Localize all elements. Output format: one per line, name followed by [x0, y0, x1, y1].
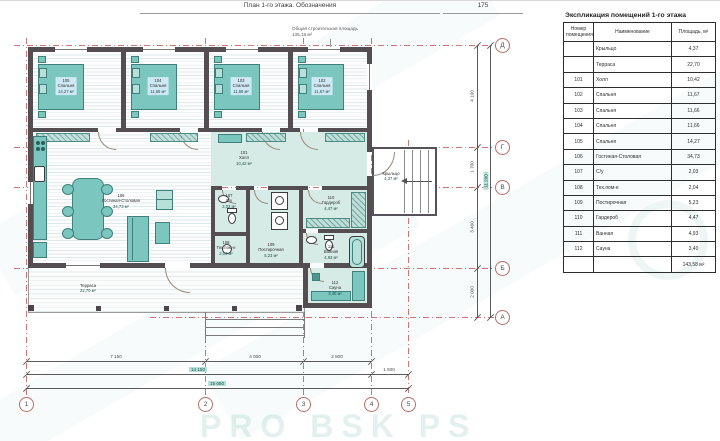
table-row: Крыльцо4,37: [564, 42, 716, 57]
cell-name: Ванная: [594, 226, 672, 241]
cell-area: 11,66: [672, 103, 716, 118]
abs: [214, 56, 222, 63]
terrace-steps: [205, 312, 305, 338]
abs: [367, 176, 372, 268]
abs: [198, 128, 262, 132]
chair: [62, 206, 74, 217]
rl-area: 2,04 м²: [216, 251, 235, 256]
total-area: 143,58 м²: [672, 257, 716, 272]
axis-marker-3: 3: [296, 397, 311, 412]
cell-area: 5,23: [672, 195, 716, 210]
rl-area: 10,42 м²: [236, 161, 252, 166]
rl-name: Спальня: [150, 83, 167, 88]
abs: [367, 268, 372, 308]
abs: [131, 111, 139, 118]
abs: [318, 128, 367, 132]
dim-label: 3 400: [470, 221, 475, 233]
cell-number: 107: [564, 165, 594, 180]
c-num: [564, 257, 594, 272]
cell-number: 104: [564, 118, 594, 133]
build-area-note: Общая строительная площадь 135,18 м²: [292, 26, 372, 38]
rl-name: Ванная: [324, 249, 338, 254]
abs: [121, 52, 126, 132]
abs: [275, 216, 284, 225]
rl-name: Гардероб: [322, 200, 340, 205]
rl-area: 14,27 м²: [58, 89, 75, 94]
abs: [131, 56, 139, 63]
room-label-r108: 108Тех.пом-е2,04 м²: [216, 240, 235, 256]
cell-number: 106: [564, 149, 594, 164]
armchair: [155, 222, 170, 244]
dining-table: [72, 178, 104, 240]
axis-marker-1: 1: [19, 397, 34, 412]
abs: [38, 111, 46, 118]
cell-name: Гардероб: [594, 211, 672, 226]
dim-label: 1 500: [383, 367, 395, 372]
rl-area: 4,37 м²: [382, 176, 399, 181]
abs: [280, 128, 300, 132]
table-row: 107С/у2,03: [564, 165, 716, 180]
cell-number: 112: [564, 242, 594, 257]
abs: [41, 141, 45, 145]
rl-area: 3,40 м²: [328, 291, 342, 296]
abs: [214, 111, 222, 118]
window: [55, 47, 87, 52]
abs: [367, 47, 372, 152]
window: [367, 64, 372, 90]
cell-area: 34,73: [672, 149, 716, 164]
closet: [150, 133, 198, 142]
table-row: 109Постирочная5,23: [564, 195, 716, 210]
axis-marker-А: А: [495, 310, 510, 325]
dim-label: 15 650: [208, 381, 226, 386]
screenshot-root: PRO BSK PS План 1-го этажа. Обозначения …: [0, 0, 720, 441]
abs: [236, 186, 254, 190]
cell-area: 4,37: [672, 42, 716, 57]
rl-name: Сауна: [328, 285, 342, 290]
abs: [215, 68, 223, 78]
abs: [132, 218, 133, 260]
bath-sink: [306, 236, 317, 244]
axis-marker-4: 4: [364, 397, 379, 412]
abs: [38, 56, 46, 63]
cell-area: 2,03: [672, 165, 716, 180]
cell-name: Холл: [594, 72, 672, 87]
room-label-terrace: Терраса22,70 м²: [80, 283, 96, 294]
abs: [275, 196, 284, 205]
sofa: [127, 216, 149, 262]
abs: [298, 56, 306, 63]
abs: [211, 186, 215, 263]
col-header-name: Наименование: [594, 23, 672, 42]
table-row: 111Ванная4,93: [564, 226, 716, 241]
cell-area: 11,66: [672, 118, 716, 133]
abs: [28, 305, 34, 311]
cell-name: С/у: [594, 165, 672, 180]
table-row: 108Тех.пом-е2,04: [564, 180, 716, 195]
cell-name: Гостиная-Столовая: [594, 149, 672, 164]
cell-number: 103: [564, 103, 594, 118]
abs: [36, 147, 40, 151]
abs: [215, 232, 246, 236]
hall-cabinet: [218, 134, 242, 143]
room-label-r106: 106Гостиная-Столовая34,73 м²: [102, 193, 140, 209]
abs: [26, 361, 371, 362]
axis-marker-Г: Г: [495, 140, 510, 155]
room-label-r107: 107С/у2,03 м²: [222, 193, 236, 209]
cell-number: 101: [564, 72, 594, 87]
abs: [298, 111, 306, 118]
abs: [14, 45, 496, 46]
cell-number: 110: [564, 211, 594, 226]
abs: [36, 141, 40, 145]
window: [66, 263, 100, 268]
room-label-r111: 111Ванная4,93 м²: [324, 244, 338, 260]
table-row: 103Спальня11,66: [564, 103, 716, 118]
rl-name: Тех.пом-е: [216, 245, 235, 250]
axis-marker-Б: Б: [495, 261, 510, 276]
thead: Номер помещения Наименование Площадь, м²: [564, 23, 716, 42]
kitchen-sink: [34, 166, 45, 182]
room-label-r109: 109Постирочная5,23 м²: [258, 242, 283, 258]
dim-label: 4 000: [249, 354, 261, 359]
abs: [246, 190, 250, 263]
table-row: 112Сауна3,40: [564, 242, 716, 257]
chair: [62, 228, 74, 239]
kitchen-counter: [33, 136, 47, 240]
cell-name: Спальня: [594, 134, 672, 149]
abs: [26, 388, 408, 389]
cell-name: Спальня: [594, 88, 672, 103]
tbody: Крыльцо4,37Терраса22,70101Холл10,42102Сп…: [564, 42, 716, 273]
abs: [132, 68, 140, 78]
abs: [190, 263, 310, 268]
table-row: 105Спальня14,27: [564, 134, 716, 149]
abs: [96, 306, 101, 311]
abs: [299, 68, 307, 78]
room-label-r110: 110Гардероб4,47 м²: [322, 195, 340, 211]
dim-label: 4 100: [470, 90, 475, 102]
abs: [303, 303, 372, 308]
window: [143, 47, 175, 52]
cell-area: 4,47: [672, 211, 716, 226]
cell-area: 14,27: [672, 134, 716, 149]
cell-number: 105: [564, 134, 594, 149]
abs: [39, 84, 47, 94]
fridge: [33, 242, 47, 258]
dim-label: 11 200: [484, 172, 489, 190]
table-row: 101Холл10,42: [564, 72, 716, 87]
rl-area: 11,66 м²: [150, 89, 167, 94]
cell-area: 11,67: [672, 88, 716, 103]
tv-unit: [156, 190, 173, 210]
cell-name: Спальня: [594, 103, 672, 118]
dim-label: 14 150: [189, 367, 207, 372]
dim-label: 1 700: [470, 161, 475, 173]
room-label-r101: 101Холл10,42 м²: [236, 150, 252, 166]
abs: [330, 39, 331, 47]
cell-name: Сауна: [594, 242, 672, 257]
abs: [150, 317, 496, 318]
rl-area: 4,47 м²: [322, 206, 340, 211]
abs: [299, 190, 303, 263]
room-label-r103: 103Спальня11,66 м²: [231, 77, 252, 95]
c-name: [594, 257, 672, 272]
dim-label: 2 000: [470, 286, 475, 298]
rl-area: 11,67 м²: [314, 89, 331, 94]
rl-area: 34,73 м²: [102, 204, 140, 209]
dim-label: 7 150: [110, 354, 122, 359]
abs: [41, 147, 45, 151]
table-row: 102Спальня11,67: [564, 88, 716, 103]
abs: [303, 268, 308, 308]
table-row: 106Гостиная-Столовая34,73: [564, 149, 716, 164]
schedule-title: Экспликация помещений 1-го этажа: [565, 12, 718, 19]
chair: [101, 228, 113, 239]
axis-marker-В: В: [495, 180, 510, 195]
cell-area: 22,70: [672, 57, 716, 72]
room-label-r104: 104Спальня11,66 м²: [148, 77, 169, 95]
room-label-r102: 102Спальня11,67 м²: [312, 77, 333, 95]
cell-name: Крыльцо: [594, 42, 672, 57]
abs: [296, 305, 302, 311]
room-label-r112: 112Сауна3,40 м²: [328, 280, 342, 296]
abs: [39, 68, 47, 78]
cell-number: 109: [564, 195, 594, 210]
cell-number: 102: [564, 88, 594, 103]
table-row: 104Спальня11,66: [564, 118, 716, 133]
room-label-porch: Крыльцо4,37 м²: [382, 171, 399, 182]
room-schedule-panel: Экспликация помещений 1-го этажа Номер п…: [563, 12, 718, 273]
cell-number: 111: [564, 226, 594, 241]
rl-area: 5,23 м²: [258, 253, 283, 258]
rl-name: Гостиная-Столовая: [102, 198, 140, 203]
chair: [62, 184, 74, 195]
tr: Номер помещения Наименование Площадь, м²: [564, 23, 716, 42]
abs: [157, 199, 172, 200]
abs: [477, 45, 478, 317]
rl-name: Спальня: [233, 83, 250, 88]
abs: [232, 306, 237, 311]
dim-label: 2 800: [331, 354, 343, 359]
cell-name: Постирочная: [594, 195, 672, 210]
abs: [318, 229, 367, 233]
porch-arrow: [404, 181, 432, 182]
col-header-area: Площадь, м²: [672, 23, 716, 42]
abs: [215, 84, 223, 94]
abs: [299, 84, 307, 94]
cell-area: 2,04: [672, 180, 716, 195]
wardrobe-shelves: [351, 192, 366, 228]
abs: [490, 45, 491, 317]
rl-area: 4,93 м²: [324, 255, 338, 260]
rl-name: Спальня: [58, 83, 75, 88]
room-schedule-table: Номер помещения Наименование Площадь, м²…: [563, 22, 716, 273]
rl-name: Постирочная: [258, 247, 283, 252]
axis-marker-5: 5: [401, 397, 416, 412]
cell-area: 4,93: [672, 226, 716, 241]
abs: [164, 306, 169, 311]
cell-name: Спальня: [594, 118, 672, 133]
abs: [132, 84, 140, 94]
room-label-r105: 105Спальня14,27 м²: [56, 77, 77, 95]
toilet-bowl: [228, 213, 236, 224]
rl-name: Спальня: [314, 83, 331, 88]
cell-name: Тех.пом-е: [594, 180, 672, 195]
abs: [352, 239, 362, 265]
cell-number: [564, 42, 594, 57]
table-row: 110Гардероб4,47: [564, 211, 716, 226]
cell-number: 108: [564, 180, 594, 195]
abs: [288, 52, 293, 132]
axis-marker-Д: Д: [495, 38, 510, 53]
window: [308, 47, 340, 52]
window: [226, 47, 258, 52]
cell-area: 10,42: [672, 72, 716, 87]
abs: [322, 186, 367, 190]
abs: [215, 186, 222, 190]
wardrobe-shelves: [306, 218, 350, 228]
abs: [116, 128, 180, 132]
rl-area: 2,03 м²: [222, 204, 236, 209]
abs: [401, 178, 407, 184]
sauna-bench: [352, 271, 365, 301]
col-header-number: Номер помещения: [564, 23, 594, 42]
closet: [325, 133, 365, 142]
axis-marker-2: 2: [198, 397, 213, 412]
floor-plan: Общая строительная площадь 135,18 м² 7 1…: [0, 0, 560, 441]
abs: [26, 38, 27, 396]
cell-number: [564, 57, 594, 72]
cell-name: Терраса: [594, 57, 672, 72]
rl-area: 11,66 м²: [233, 89, 250, 94]
sauna-heater: [312, 273, 320, 281]
cell-area: 3,40: [672, 242, 716, 257]
closet: [246, 133, 286, 142]
abs: [33, 128, 98, 132]
table-total-row: 143,58 м²: [564, 257, 716, 272]
rl-area: 22,70 м²: [80, 288, 96, 293]
abs: [26, 374, 408, 375]
table-row: Терраса22,70: [564, 57, 716, 72]
abs: [204, 52, 209, 132]
